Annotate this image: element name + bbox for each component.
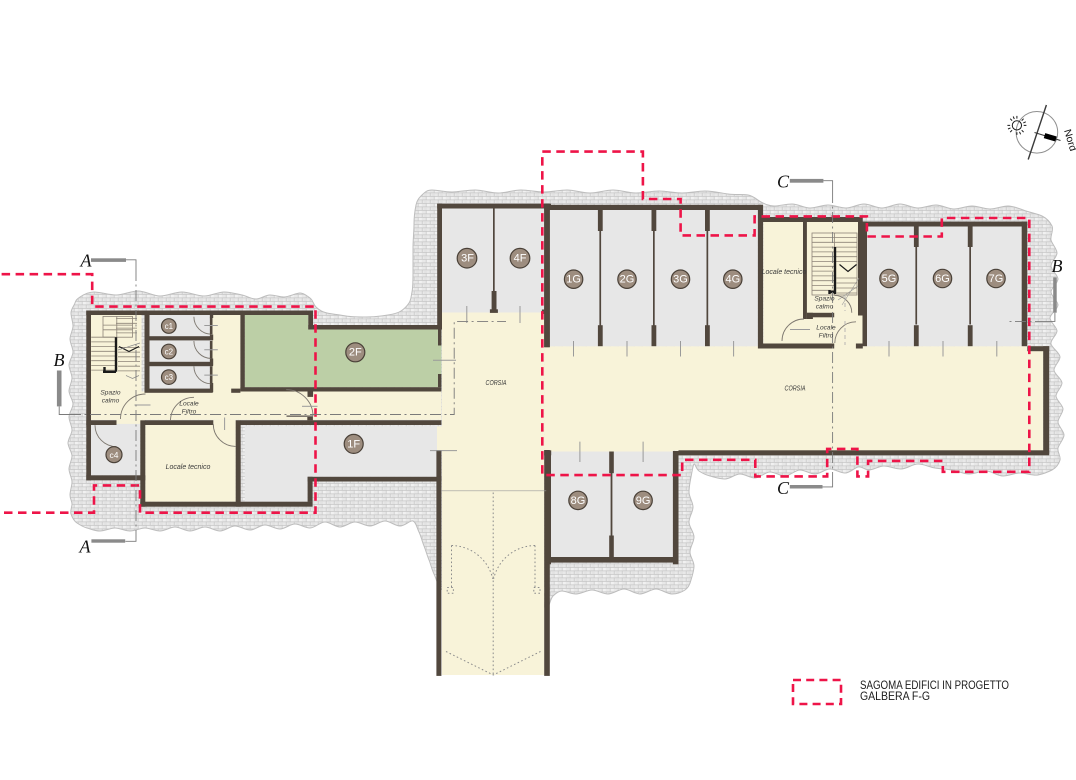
svg-text:2F: 2F <box>349 347 362 359</box>
svg-text:3F: 3F <box>461 253 474 265</box>
svg-text:calmo: calmo <box>102 398 120 405</box>
svg-text:A: A <box>80 251 93 271</box>
svg-text:Locale tecnico: Locale tecnico <box>762 269 807 276</box>
svg-text:9G: 9G <box>636 495 651 507</box>
svg-text:A: A <box>79 537 92 557</box>
svg-text:calmo: calmo <box>816 304 834 311</box>
svg-text:B: B <box>1052 256 1063 276</box>
svg-text:c3: c3 <box>165 373 174 382</box>
svg-text:3G: 3G <box>673 274 688 286</box>
svg-text:CORSIA: CORSIA <box>486 380 507 387</box>
svg-text:c1: c1 <box>165 322 174 331</box>
svg-text:C: C <box>777 172 790 192</box>
svg-text:Spazio: Spazio <box>814 296 834 303</box>
svg-text:CORSIA: CORSIA <box>785 386 806 393</box>
svg-text:1F: 1F <box>347 438 360 450</box>
svg-text:4G: 4G <box>725 274 740 286</box>
svg-text:8G: 8G <box>571 495 586 507</box>
svg-text:Filtro: Filtro <box>182 408 197 415</box>
svg-text:Filtro: Filtro <box>819 333 834 340</box>
svg-text:7G: 7G <box>989 273 1004 285</box>
svg-text:Nord: Nord <box>1061 128 1076 153</box>
svg-text:2G: 2G <box>620 274 635 286</box>
svg-text:GALBERA F-G: GALBERA F-G <box>860 689 930 703</box>
svg-text:6G: 6G <box>935 273 950 285</box>
svg-text:Spazio: Spazio <box>100 390 120 397</box>
svg-text:Locale tecnico: Locale tecnico <box>166 464 211 471</box>
svg-text:4F: 4F <box>514 253 527 265</box>
svg-text:Locale: Locale <box>179 400 199 407</box>
svg-text:Locale: Locale <box>816 325 836 332</box>
svg-text:c4: c4 <box>110 450 119 460</box>
svg-text:c2: c2 <box>165 348 174 357</box>
svg-text:5G: 5G <box>882 273 897 285</box>
svg-text:C: C <box>777 478 790 498</box>
svg-text:1G: 1G <box>566 274 581 286</box>
svg-text:B: B <box>54 350 65 370</box>
